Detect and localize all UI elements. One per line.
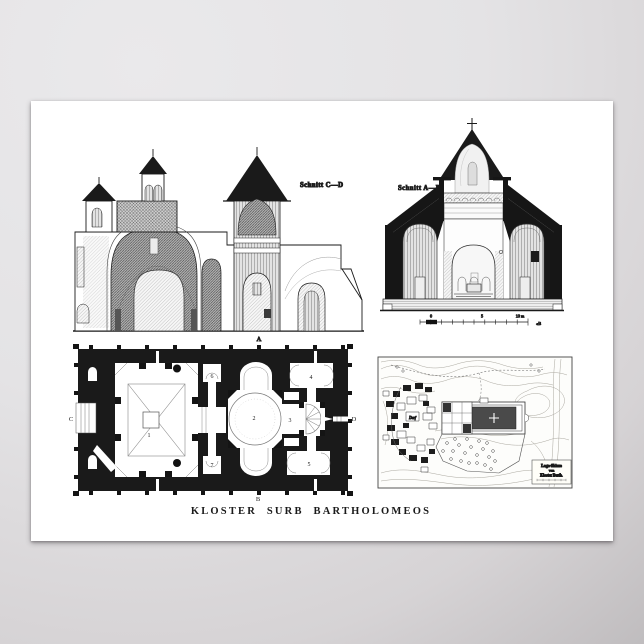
wall-niche-sw (88, 455, 97, 469)
wall-mass-right (544, 233, 554, 299)
scale-five: 5 (481, 314, 483, 319)
floor-plan-drawing: 1 2 3 4 5 6 7 B C D (69, 344, 357, 503)
apse-arch (134, 270, 184, 331)
base-step-left (383, 304, 392, 310)
naos-center-square (143, 412, 159, 428)
belfry-band-2 (234, 248, 280, 253)
axis-c-label: C (69, 416, 73, 423)
section-ab-label: Schnitt A—B (398, 185, 441, 192)
floor-pier-right (191, 309, 197, 331)
wing-door-inner (304, 291, 319, 331)
tower-door-right (520, 277, 530, 299)
wall-mass-left (393, 233, 403, 299)
scale-bar: 0 5 10 m «B (420, 314, 541, 327)
room-4-number: 4 (310, 375, 313, 381)
axis-a-label: A (257, 336, 262, 343)
belfry-niche (264, 309, 271, 318)
cartouche-name: Kloster Barth. (540, 473, 563, 478)
nave-wall-hatch-left (444, 251, 452, 299)
west-portal (76, 403, 96, 433)
east-slot-n (284, 392, 299, 400)
lantern-roof (139, 156, 167, 174)
belfry-roof (226, 155, 288, 201)
attic-block (117, 201, 177, 232)
belfry-band-1 (234, 238, 280, 243)
base-step-right (553, 304, 562, 310)
wall-niche-nw (88, 367, 97, 381)
scale-direction: «B (536, 321, 541, 326)
column-dot-top (173, 365, 181, 373)
column-dot-bottom (173, 459, 181, 467)
room-1-number: 1 (148, 433, 151, 439)
map-cartouche: Lage-Skizze vom Kloster Barth. (532, 460, 571, 484)
wall-niche-arched (77, 304, 89, 323)
section-ab-drawing: 0 5 10 m «B Schnitt A—B (380, 118, 564, 326)
poster-artwork: Schnitt C—D A (31, 101, 613, 541)
wall-niche (77, 247, 84, 287)
east-axis-slot (333, 417, 348, 422)
poster-caption: KLOSTER SURB BARTHOLOMEOS (191, 506, 431, 517)
belfry-door-arch (243, 273, 271, 331)
rotunda-north-arm (240, 362, 272, 390)
east-slot-s (284, 438, 299, 446)
altar-table (467, 284, 481, 292)
scale-zero: 0 (430, 314, 432, 319)
floor-pier-left (115, 309, 121, 331)
lantern-arch-left (145, 185, 153, 201)
drum-interior (444, 203, 503, 219)
cartouche-title: Lage-Skizze (541, 463, 562, 468)
corridor-s (208, 432, 216, 456)
section-cd-label: Schnitt C—D (300, 182, 344, 189)
section-cd-drawing: Schnitt C—D A (73, 147, 364, 343)
chapel-4-link (307, 388, 316, 402)
room-7-number: 7 (211, 463, 214, 469)
tower-door-left (415, 277, 425, 299)
outer-wall-left (385, 225, 393, 299)
axis-b-label: B (256, 496, 261, 503)
room-5-number: 5 (308, 462, 311, 468)
scale-ten: 10 m (516, 314, 525, 319)
drum-window (468, 162, 477, 185)
lantern-arch-right (154, 185, 162, 201)
village-label: Dorf (408, 416, 417, 420)
room-6-number: 6 (211, 374, 214, 380)
chapel-5-link (307, 436, 316, 451)
axis-d-label: D (352, 416, 357, 423)
left-tower-roof (82, 183, 116, 201)
belfry-door-window (253, 283, 261, 295)
stair-turret (202, 259, 221, 331)
gate-tick (480, 398, 488, 403)
room-3-number: 3 (289, 418, 292, 424)
dome-window (150, 238, 158, 254)
base-platform (383, 299, 562, 310)
eave-right (493, 177, 511, 180)
nave-wall-hatch-right (495, 251, 503, 299)
site-map-drawing: Dorf (378, 357, 572, 488)
poster: Schnitt C—D A (31, 101, 613, 541)
left-tower-window (92, 208, 102, 227)
room-2-number: 2 (253, 416, 256, 422)
outer-wall-right (554, 225, 562, 299)
tower-window-right (531, 251, 539, 262)
corridor-n (208, 382, 216, 408)
eave-left (433, 177, 451, 180)
scale-block (426, 320, 437, 324)
rotunda-south-arm (240, 448, 272, 476)
